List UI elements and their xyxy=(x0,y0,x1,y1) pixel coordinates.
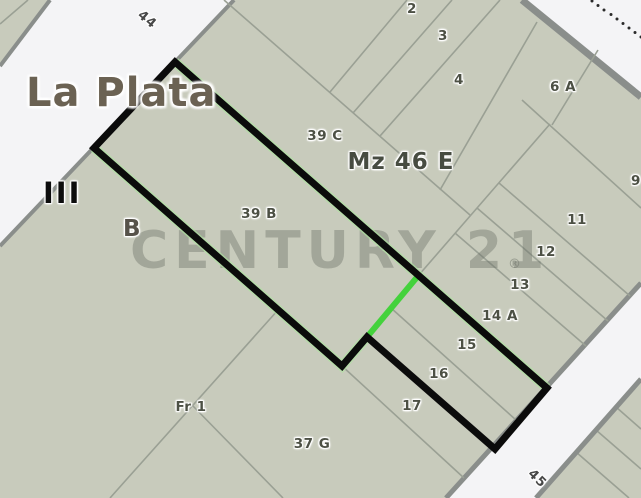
watermark-registered-icon: ® xyxy=(508,257,521,272)
map-canvas: CENTURY 21 ® xyxy=(0,0,641,498)
cadastral-map[interactable]: CENTURY 21 ® La Plata III B Mz 46 E 44 4… xyxy=(0,0,641,498)
